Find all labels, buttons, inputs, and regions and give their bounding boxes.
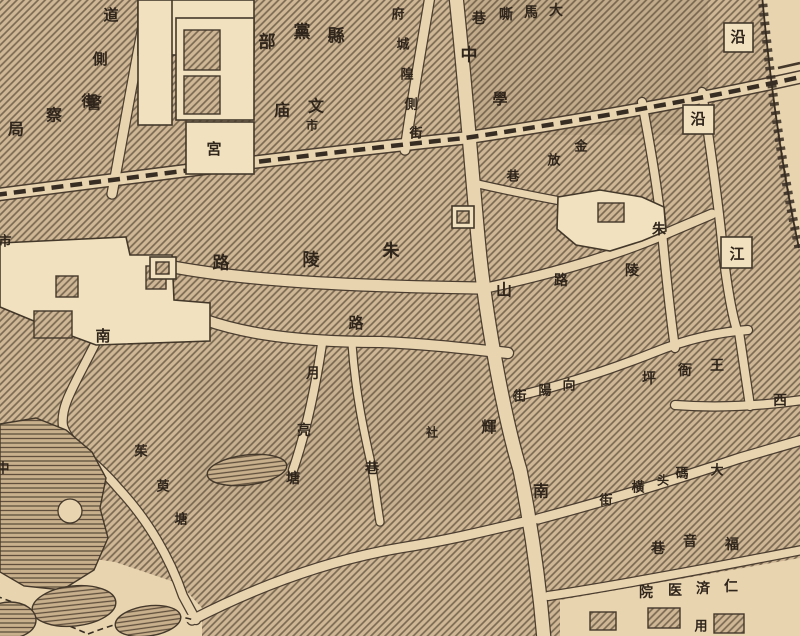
label-fuchenghuang-street: 府 — [391, 7, 404, 23]
courtyard — [184, 76, 220, 114]
label-char-lu: 路 — [348, 314, 364, 332]
label-damatou-heng-street: 大 — [710, 463, 723, 479]
label-zhuyutang: 萸 — [156, 479, 170, 495]
label-wangyaping: 衙 — [677, 362, 692, 379]
label-damasi-lane: 大 — [549, 2, 563, 19]
label-fuchenghuang-street: 側 — [403, 97, 417, 113]
label-char-shan: 山 — [496, 281, 512, 300]
label-fuyin-lane: 巷 — [650, 540, 666, 557]
label-fuyin-lane: 福 — [724, 536, 739, 553]
label-jingchaju: 局 — [8, 120, 24, 139]
courtyard — [184, 30, 220, 70]
label-jinfang-lane: 金 — [573, 139, 588, 155]
label-shi-small: 市 — [306, 118, 318, 133]
label-xiandangbu: 黨 — [294, 22, 311, 43]
label-gong: 宮 — [206, 140, 221, 158]
label-fuchenghuang-street: 街 — [408, 126, 422, 142]
label-fuchenghuang-street: 城 — [396, 37, 409, 53]
label-zhuling-road-east: 路 — [554, 272, 569, 289]
label-char-partial-left: 中 — [0, 461, 10, 477]
label-xiangyang-street: 陽 — [538, 383, 551, 399]
building-wenmiao-westwing — [138, 0, 172, 125]
label-damasi-lane: 嘶 — [499, 6, 513, 23]
label-damatou-heng-street: 街 — [598, 493, 612, 509]
map-canvas: 局察警道側街部黨縣庙文市府城隍側街宮巷嘶馬大中學山南沿沿江金放巷路陵朱路路陵朱南… — [0, 0, 800, 636]
label-xiandangbu: 縣 — [328, 27, 345, 47]
label-char-jiang: 江 — [729, 245, 744, 263]
label-daoce-street: 街 — [80, 92, 96, 110]
label-zhuling-road-west: 路 — [213, 253, 231, 274]
courtyard — [598, 203, 624, 222]
label-wenmiao: 文 — [308, 97, 325, 116]
label-jinfang-lane: 巷 — [505, 169, 520, 185]
label-renji-hospital: 医 — [668, 583, 682, 599]
label-zhuyutang: 塘 — [174, 512, 187, 528]
label-char-shi-edge: 市 — [0, 234, 12, 250]
label-damasi-lane: 巷 — [471, 10, 487, 27]
pond-island — [58, 499, 82, 523]
label-fuyin-lane: 音 — [683, 533, 697, 550]
label-char-partial-bottom: 用 — [693, 620, 707, 635]
label-damasi-lane: 馬 — [524, 5, 538, 21]
label-damatou-heng-street: 碼 — [674, 467, 688, 482]
label-damatou-heng-street: 橫 — [631, 480, 645, 496]
label-xiangyang-street: 向 — [562, 378, 575, 394]
label-char-xi: 西 — [773, 393, 787, 409]
label-zhuyutang: 茱 — [133, 444, 148, 460]
label-char-xiang: 巷 — [364, 460, 380, 477]
label-daoce-street: 側 — [91, 50, 107, 68]
historical-street-map: 局察警道側街部黨縣庙文市府城隍側街宮巷嘶馬大中學山南沿沿江金放巷路陵朱路路陵朱南… — [0, 0, 800, 636]
label-wangyaping: 坪 — [642, 371, 656, 387]
courtyard — [457, 211, 469, 223]
label-char-nan-zhongshan: 南 — [533, 482, 549, 501]
label-daoce-street: 道 — [103, 6, 118, 24]
hospital-building — [714, 614, 744, 633]
label-wenmiao: 庙 — [274, 101, 290, 120]
label-char-yan-2: 沿 — [690, 110, 705, 128]
label-renji-hospital: 院 — [639, 584, 653, 601]
label-damatou-heng-street: 头 — [657, 473, 669, 488]
label-wangyaping: 王 — [710, 358, 724, 374]
courtyard — [56, 276, 78, 297]
label-zhuling-road-east: 朱 — [652, 221, 667, 238]
label-jingchaju: 察 — [45, 106, 63, 125]
label-xiandangbu: 部 — [259, 32, 276, 53]
label-yueliangtang: 塘 — [286, 470, 300, 487]
label-yueliangtang: 亮 — [297, 422, 311, 439]
label-renji-hospital: 済 — [696, 580, 711, 597]
courtyard — [34, 311, 72, 338]
label-yueliangtang: 月 — [305, 366, 320, 382]
label-char-yan-1: 沿 — [730, 28, 745, 46]
label-zhuling-road-west: 朱 — [383, 241, 401, 262]
courtyard — [156, 262, 169, 274]
label-zhuling-road-east: 陵 — [625, 262, 640, 279]
label-char-nan-west: 南 — [95, 327, 110, 345]
hospital-building — [648, 608, 680, 628]
label-jinfang-lane: 放 — [546, 153, 561, 169]
label-fuchenghuang-street: 隍 — [400, 67, 413, 83]
label-char-hui: 輝 — [481, 418, 496, 436]
label-char-zhong: 中 — [461, 45, 478, 66]
label-char-xue: 學 — [492, 90, 507, 108]
label-renji-hospital: 仁 — [724, 578, 738, 595]
hospital-building — [590, 612, 616, 630]
label-zhuling-road-west: 陵 — [303, 250, 321, 271]
label-char-she: 社 — [425, 425, 438, 440]
label-xiangyang-street: 街 — [512, 389, 526, 405]
